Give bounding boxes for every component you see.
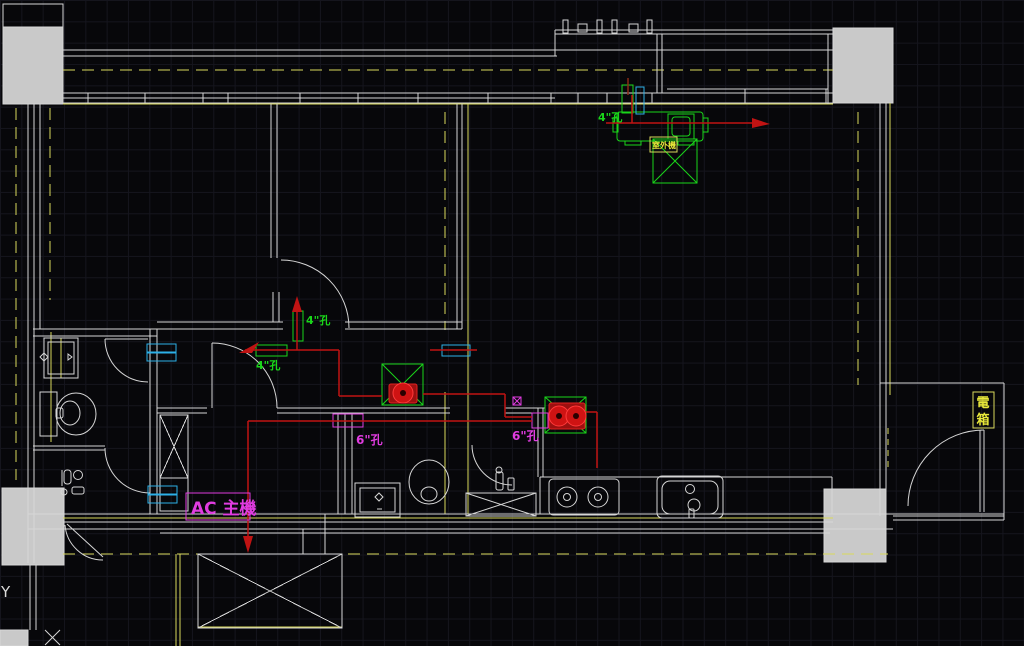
- sleeve-6in-dining: [532, 413, 548, 428]
- column-corner-stub: [0, 630, 28, 646]
- column-top-left: [3, 27, 63, 104]
- structural-columns: [0, 4, 893, 646]
- vent-bath1-a: [147, 344, 176, 352]
- axis-cross-mark: [45, 630, 60, 645]
- bath1-door-swing: [105, 339, 148, 382]
- fixtures-layer: [40, 338, 832, 518]
- hvac-green-layer: [256, 85, 708, 433]
- stove: [549, 479, 619, 515]
- toilet-1-bowl: [56, 393, 96, 435]
- flow-arrow-right: [752, 118, 770, 128]
- outdoor-unit-label: 室外機: [652, 140, 676, 150]
- kitchen-sink: [657, 476, 723, 518]
- sleeves-cyan-layer: [147, 87, 644, 503]
- label-4in-hole-bedroom: 4"孔: [306, 314, 330, 327]
- vent-bath1-b: [147, 353, 176, 361]
- entry-door-swing: [908, 430, 984, 506]
- annotations-layer: 4"孔 4"孔 4"孔 6"孔 6"孔 AC 主機 電 箱 室外機 Y: [0, 111, 994, 645]
- marker-magenta-small: [513, 397, 521, 405]
- balcony-rail-lines: [176, 554, 180, 646]
- pipe-hall-run: [245, 305, 477, 396]
- electrical-box-label-1: 電: [976, 396, 989, 411]
- bath3-door-swing: [472, 445, 512, 485]
- column-top-right: [833, 28, 893, 103]
- electrical-box-tag: 電 箱: [973, 392, 994, 428]
- vent-bath2-a: [148, 486, 177, 494]
- cad-drawing-canvas[interactable]: 4"孔 4"孔 4"孔 6"孔 6"孔 AC 主機 電 箱 室外機 Y: [0, 0, 1024, 646]
- column-bottom-right: [824, 489, 886, 562]
- electrical-box-label-2: 箱: [976, 412, 989, 428]
- fan-symbol-2: [549, 403, 586, 429]
- sleeve-cyan-balcony: [636, 87, 644, 114]
- floor-plan-svg: 4"孔 4"孔 4"孔 6"孔 6"孔 AC 主機 電 箱 室外機 Y: [0, 0, 1024, 646]
- toilet-1-tank: [40, 392, 57, 436]
- ac-main-unit-label: AC 主機: [191, 498, 257, 519]
- laundry-faucet: [496, 467, 514, 490]
- sleeve-4in-bedroom: [293, 311, 303, 341]
- flow-arrow-up: [292, 296, 302, 312]
- vent-bath2-b: [148, 495, 177, 503]
- kitchen-counter: [540, 477, 832, 514]
- label-6in-hole-dining: 6"孔: [512, 429, 539, 443]
- column-bottom-left: [2, 488, 64, 565]
- bath2-door-swing: [105, 448, 150, 493]
- label-6in-hole-hall: 6"孔: [356, 433, 383, 447]
- axis-y-label: Y: [0, 583, 11, 601]
- fan-symbol-1: [389, 383, 417, 403]
- ac-main-unit-tag: AC 主機: [186, 493, 257, 520]
- entry-door-leaf: [980, 430, 984, 512]
- toilet-2-bowl: [409, 460, 449, 504]
- flow-arrow-down: [243, 536, 253, 553]
- label-4in-hole-balcony: 4"孔: [598, 111, 622, 124]
- label-4in-hole-hall: 4"孔: [256, 359, 280, 372]
- pipe-balcony-run: [606, 95, 752, 123]
